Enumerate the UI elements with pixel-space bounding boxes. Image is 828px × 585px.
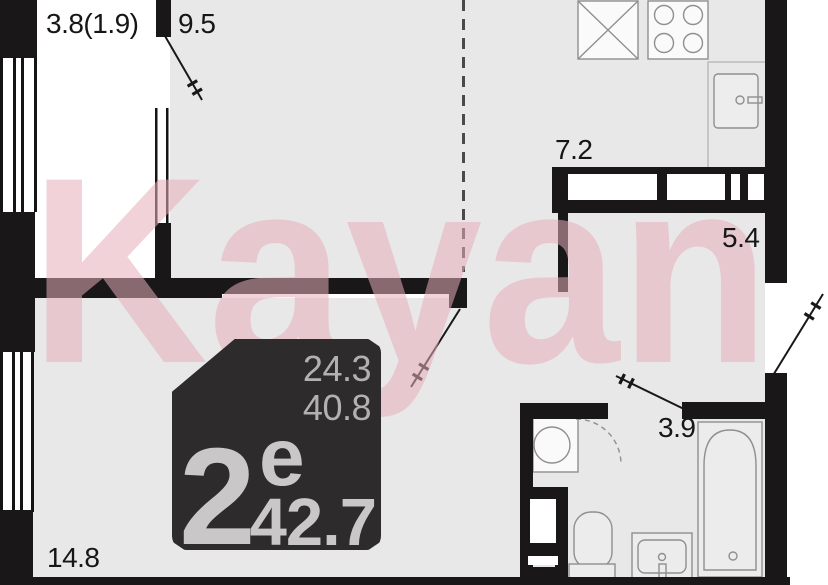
watermark: Kayan	[30, 123, 770, 420]
window-line	[21, 58, 24, 212]
toilet-bowl	[574, 512, 612, 569]
wall-segment	[0, 510, 33, 585]
toilet-tank	[569, 564, 615, 578]
wall-segment	[156, 0, 171, 37]
badge-area-without-balcony: 40.8	[303, 388, 371, 427]
window-line	[13, 58, 16, 212]
shaft-niche	[528, 556, 558, 565]
wall-segment	[0, 577, 790, 585]
apartment-info-badge: 24.3 40.8 2 е 42.7	[172, 339, 381, 550]
entrance-door	[772, 294, 823, 377]
window-line	[0, 58, 3, 212]
shaft-wall	[528, 547, 558, 556]
room-label-balcony: 3.8(1.9)	[46, 10, 139, 38]
window-line	[20, 350, 23, 512]
badge-areas: 24.3 40.8	[303, 349, 371, 427]
floorplan: Kayan 3.8(1.9) 9.5 7.2 5.4 3.9 14.8 24.3…	[0, 0, 828, 585]
room-label-kitchen: 7.2	[555, 136, 592, 164]
room-label-bedroom: 9.5	[178, 10, 215, 38]
badge-total-area: 42.7	[250, 489, 376, 556]
washing-machine	[533, 418, 578, 472]
room-label-hallway: 5.4	[722, 224, 759, 252]
window-living-bg	[0, 350, 34, 512]
floorplan-drawing: Kayan	[0, 0, 828, 585]
room-label-bathroom: 3.9	[658, 414, 695, 442]
window-line	[12, 350, 15, 512]
wall-segment	[0, 0, 37, 58]
room-label-living-room: 14.8	[47, 544, 100, 572]
shaft-niche	[530, 499, 556, 543]
window-line	[0, 350, 3, 512]
badge-living-area: 24.3	[303, 349, 371, 388]
badge-room-count: 2	[179, 428, 256, 566]
